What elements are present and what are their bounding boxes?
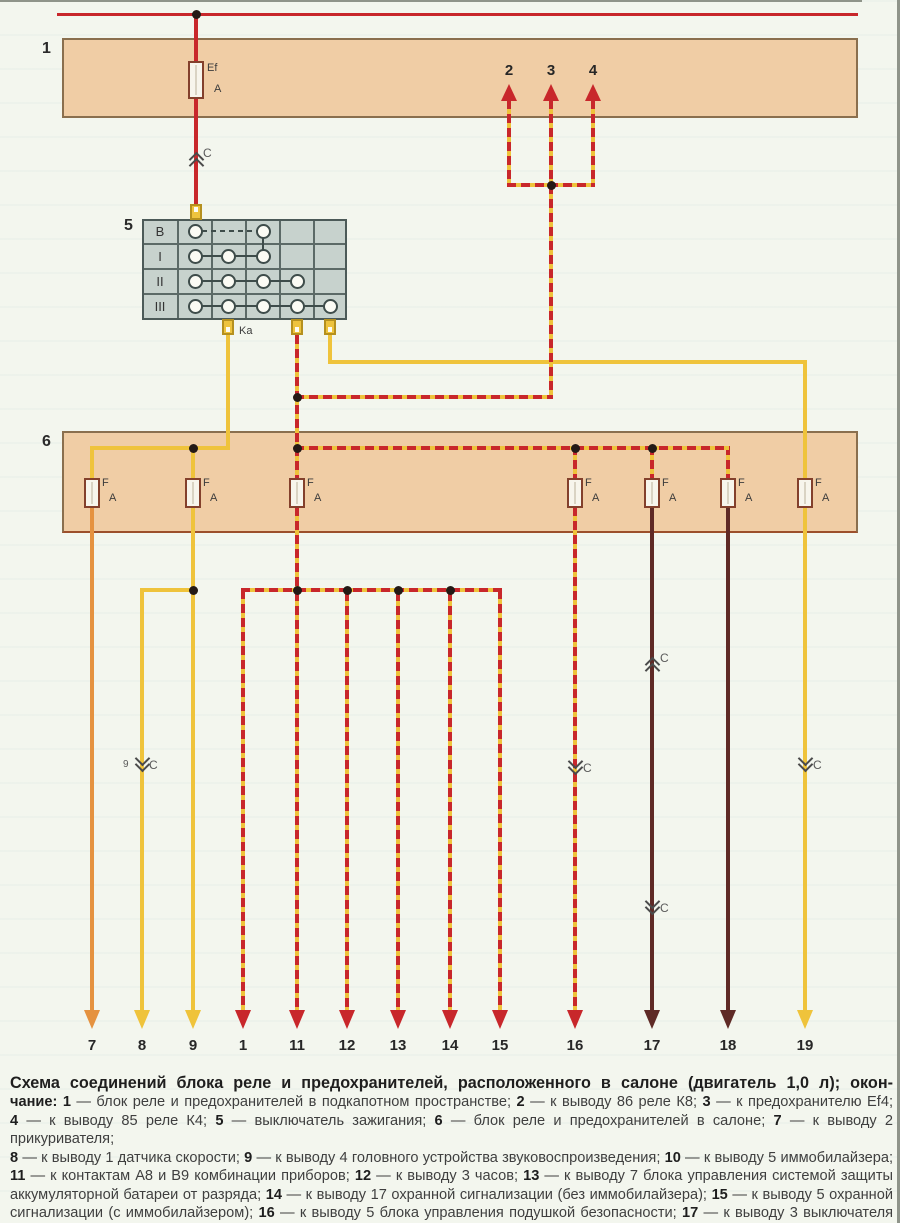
fuse-amp-label: A <box>592 492 599 504</box>
wire-segment <box>241 590 245 1012</box>
fuse-element <box>651 482 653 504</box>
relay-fuse-block-engine-bay <box>62 38 858 118</box>
fuse-amp-label: A <box>822 492 829 504</box>
connector-c-mark: C <box>583 761 592 775</box>
bottom-terminal-number: 14 <box>442 1037 459 1054</box>
fuse-f-label: F <box>585 477 592 489</box>
wire-segment <box>295 395 553 399</box>
wire-segment <box>295 335 299 479</box>
caption-segment: — к выводу 85 реле К4; <box>18 1113 215 1129</box>
junction-dot <box>571 444 580 453</box>
switch-grid-line <box>177 221 179 318</box>
bottom-terminal-number: 17 <box>644 1037 661 1054</box>
connector-chevron-icon <box>645 658 659 673</box>
switch-row-label: B <box>156 224 165 239</box>
bottom-terminal-number: 19 <box>797 1037 814 1054</box>
wire-segment <box>549 100 553 185</box>
arrowhead-down <box>644 1010 660 1029</box>
connector-c-mark: C <box>149 758 158 772</box>
fuse-symbol <box>84 478 100 508</box>
caption-segment: — к выводу 7 блока управления системой з… <box>539 1168 893 1184</box>
connector-c-mark: C <box>660 901 669 915</box>
fuse-amp-label: A <box>210 492 217 504</box>
switch-contact <box>221 274 236 289</box>
caption-segment: — к выводу 17 охранной сигнализации (без… <box>282 1187 712 1203</box>
switch-contact-dash <box>202 230 257 232</box>
caption-segment: — к выводу 5 иммобилайзера; <box>681 1150 893 1166</box>
switch-contact <box>188 274 203 289</box>
wire-segment <box>591 100 595 185</box>
bottom-terminal-number: 7 <box>88 1037 96 1054</box>
wire-segment <box>650 507 654 1012</box>
caption-line: аккумуляторной батареи от разряда; 14 — … <box>10 1186 893 1205</box>
switch-contact <box>188 299 203 314</box>
junction-dot <box>293 444 302 453</box>
wire-segment <box>57 13 858 16</box>
band6-label: 6 <box>42 433 51 451</box>
pin-slot <box>194 207 198 212</box>
bottom-terminal-number: 9 <box>189 1037 197 1054</box>
caption-segment: 15 <box>712 1187 728 1203</box>
caption-segment: 14 <box>266 1187 282 1203</box>
pin-slot <box>295 327 299 332</box>
wire-segment <box>726 446 730 479</box>
fuse-element <box>296 482 298 504</box>
bottom-terminal-number: 13 <box>390 1037 407 1054</box>
fuse-symbol <box>720 478 736 508</box>
junction-dot <box>189 586 198 595</box>
fuse-f-label: F <box>307 477 314 489</box>
bottom-terminal-number: 16 <box>567 1037 584 1054</box>
bottom-terminal-number: 15 <box>492 1037 509 1054</box>
fuse-amp-label: A <box>314 492 321 504</box>
switch-contact <box>290 299 305 314</box>
bottom-terminal-number: 11 <box>289 1037 305 1054</box>
fuse-element <box>727 482 729 504</box>
junction-dot <box>293 393 302 402</box>
junction-dot <box>446 586 455 595</box>
pin-slot <box>226 327 230 332</box>
connector-chevron-icon <box>645 896 659 911</box>
bottom-terminal-number: 8 <box>138 1037 146 1054</box>
caption-segment: 17 <box>682 1205 698 1221</box>
wire-segment <box>90 446 94 479</box>
wire-number-mark: 9 <box>123 759 129 770</box>
arrowhead-down <box>492 1010 508 1029</box>
fuse-symbol <box>289 478 305 508</box>
connector-pin <box>222 319 234 335</box>
arrowhead-down <box>390 1010 406 1029</box>
junction-dot <box>293 586 302 595</box>
caption-segment: — блок реле и предохранителей в подкапот… <box>71 1094 517 1110</box>
caption-segment: — к выводу 3 часов; <box>371 1168 523 1184</box>
wire-segment <box>140 588 193 592</box>
wire-segment <box>295 592 299 1012</box>
caption-segment: 7 <box>773 1113 781 1129</box>
wire-segment <box>396 592 400 1012</box>
wire-segment <box>194 14 198 204</box>
fuse-symbol <box>797 478 813 508</box>
junction-dot <box>394 586 403 595</box>
switch-grid-line <box>144 243 345 245</box>
arrowhead-down <box>134 1010 150 1029</box>
caption-segment: 3 <box>703 1094 711 1110</box>
caption-line: сигнализации (с иммобилайзером); 16 — к … <box>10 1204 893 1223</box>
caption-segment: 16 <box>259 1205 275 1221</box>
switch-grid-line <box>144 268 345 270</box>
wire-segment <box>90 446 230 450</box>
arrowhead-down <box>84 1010 100 1029</box>
fuse-f-label: F <box>203 477 210 489</box>
switch-contact-line <box>195 280 297 282</box>
switch-contact <box>256 299 271 314</box>
switch-row-label: I <box>158 249 162 264</box>
bottom-terminal-number: 1 <box>239 1037 247 1054</box>
switch-row-label: III <box>155 299 166 314</box>
switch-grid-line <box>245 221 247 318</box>
fuse-f-label: F <box>738 477 745 489</box>
wire-segment <box>90 507 94 1012</box>
top-terminal-number: 3 <box>547 62 555 79</box>
caption-segment: — к предохранителю Ef4; <box>711 1094 893 1110</box>
connector-chevron-icon <box>189 153 203 168</box>
caption-segment: 12 <box>355 1168 371 1184</box>
caption-line: 8 — к выводу 1 датчика скорости; 9 — к в… <box>10 1149 893 1168</box>
junction-dot <box>343 586 352 595</box>
caption-segment: — к выводу 86 реле К8; <box>525 1094 703 1110</box>
caption-segment: 13 <box>523 1168 539 1184</box>
caption-segment: 11 <box>10 1168 25 1184</box>
switch-grid-line <box>211 221 213 318</box>
wire-segment <box>241 588 502 592</box>
arrowhead-down <box>720 1010 736 1029</box>
caption-segment: — к выводу 5 охранной <box>728 1187 893 1203</box>
pin-slot <box>328 327 332 332</box>
switch-contact <box>256 224 271 239</box>
caption-segment: сигнализации (с иммобилайзером); <box>10 1205 259 1221</box>
caption-line: Схема соединений блока реле и предохрани… <box>10 1074 893 1093</box>
bottom-terminal-number: 12 <box>339 1037 356 1054</box>
arrowhead-up <box>585 84 601 101</box>
junction-dot <box>547 181 556 190</box>
fuse-symbol <box>185 478 201 508</box>
switch-grid-line <box>144 293 345 295</box>
fuse-element <box>574 482 576 504</box>
caption-segment: 6 <box>435 1113 443 1129</box>
wire-segment <box>549 185 553 397</box>
fuse-amp-label: A <box>745 492 752 504</box>
wire-segment <box>328 360 807 364</box>
switch-contact <box>256 274 271 289</box>
switch-contact <box>188 249 203 264</box>
fuse-amp-label: A <box>109 492 116 504</box>
fuse-ef-amp-label: A <box>214 83 221 95</box>
caption-segment: аккумуляторной батареи от разряда; <box>10 1187 266 1203</box>
arrowhead-down <box>289 1010 305 1029</box>
caption-line: чание: 1 — блок реле и предохранителей в… <box>10 1093 893 1112</box>
wiring-diagram-page: 1 6 5 FAFAFAFAFAFAFAEfABIIIIIIKa23478911… <box>0 0 900 1223</box>
fuse-f-label: F <box>815 477 822 489</box>
fuse-ef-symbol <box>188 61 204 99</box>
wire-segment <box>295 507 299 592</box>
caption-segment: — выключатель зажигания; <box>223 1113 434 1129</box>
caption-line: 11 — к контактам А8 и В9 комбинации приб… <box>10 1167 893 1186</box>
fuse-symbol <box>644 478 660 508</box>
fuse-element <box>192 482 194 504</box>
connector-pin <box>190 204 202 220</box>
arrowhead-down <box>185 1010 201 1029</box>
switch-contact <box>221 299 236 314</box>
connector-pin <box>291 319 303 335</box>
arrowhead-down <box>339 1010 355 1029</box>
wire-segment <box>295 446 730 450</box>
wire-segment <box>191 507 195 592</box>
caption-segment: 4 <box>10 1113 18 1129</box>
fuse-element <box>91 482 93 504</box>
bottom-terminal-number: 18 <box>720 1037 737 1054</box>
band1-label: 1 <box>42 40 51 58</box>
connector-c-mark: C <box>203 146 212 160</box>
switch-contact <box>188 224 203 239</box>
page-top-edge <box>0 0 862 2</box>
fuse-amp-label: A <box>669 492 676 504</box>
caption-segment: чание: <box>10 1094 63 1110</box>
top-terminal-number: 2 <box>505 62 513 79</box>
switch-grid-line <box>313 221 315 318</box>
caption-segment: — к контактам А8 и В9 комбинации приборо… <box>25 1168 354 1184</box>
fuse-f-label: F <box>662 477 669 489</box>
connector-chevron-icon <box>135 753 149 768</box>
arrowhead-up <box>501 84 517 101</box>
wire-segment <box>498 590 502 1012</box>
caption-segment: — к выводу 1 датчика скорости; <box>18 1150 244 1166</box>
switch-contact <box>290 274 305 289</box>
switch-contact <box>221 249 236 264</box>
caption-segment: 10 <box>665 1150 681 1166</box>
fuse-f-label: F <box>102 477 109 489</box>
fuse-ef-label: Ef <box>207 62 217 74</box>
junction-dot <box>648 444 657 453</box>
switch-contact <box>323 299 338 314</box>
ignition-switch-label: 5 <box>124 217 133 235</box>
wire-segment <box>803 360 807 479</box>
switch-row-label: II <box>156 274 163 289</box>
connector-pin <box>324 319 336 335</box>
connector-chevron-icon <box>568 756 582 771</box>
switch-contact <box>256 249 271 264</box>
top-terminal-number: 4 <box>589 62 597 79</box>
caption-segment: Схема соединений блока реле и предохрани… <box>10 1074 893 1092</box>
caption-line: 4 — к выводу 85 реле К4; 5 — выключатель… <box>10 1112 893 1149</box>
junction-dot <box>189 444 198 453</box>
wire-segment <box>191 592 195 1012</box>
connector-c-mark: C <box>660 651 669 665</box>
caption-segment: — к выводу 4 головного устройства звуков… <box>252 1150 664 1166</box>
wire-segment <box>226 335 230 448</box>
wire-segment <box>140 588 144 1012</box>
caption-segment: — к выводу 5 блока управления подушкой б… <box>275 1205 682 1221</box>
ka-label: Ka <box>239 325 252 337</box>
arrowhead-down <box>797 1010 813 1029</box>
caption-segment: — блок реле и предохранителей в салоне; <box>443 1113 774 1129</box>
arrowhead-up <box>543 84 559 101</box>
caption-segment: 8 <box>10 1150 18 1166</box>
fuse-symbol <box>567 478 583 508</box>
arrowhead-down <box>235 1010 251 1029</box>
fuse-element <box>195 65 197 95</box>
arrowhead-down <box>442 1010 458 1029</box>
wire-segment <box>345 592 349 1012</box>
connector-c-mark: C <box>813 758 822 772</box>
wire-segment <box>507 100 511 185</box>
caption-segment: 2 <box>517 1094 525 1110</box>
fuse-element <box>804 482 806 504</box>
junction-dot <box>192 10 201 19</box>
wire-segment <box>448 592 452 1012</box>
caption: Схема соединений блока реле и предохрани… <box>10 1074 893 1223</box>
wire-segment <box>726 507 730 1012</box>
caption-segment: 1 <box>63 1094 71 1110</box>
switch-grid-line <box>279 221 281 318</box>
connector-chevron-icon <box>798 753 812 768</box>
arrowhead-down <box>567 1010 583 1029</box>
